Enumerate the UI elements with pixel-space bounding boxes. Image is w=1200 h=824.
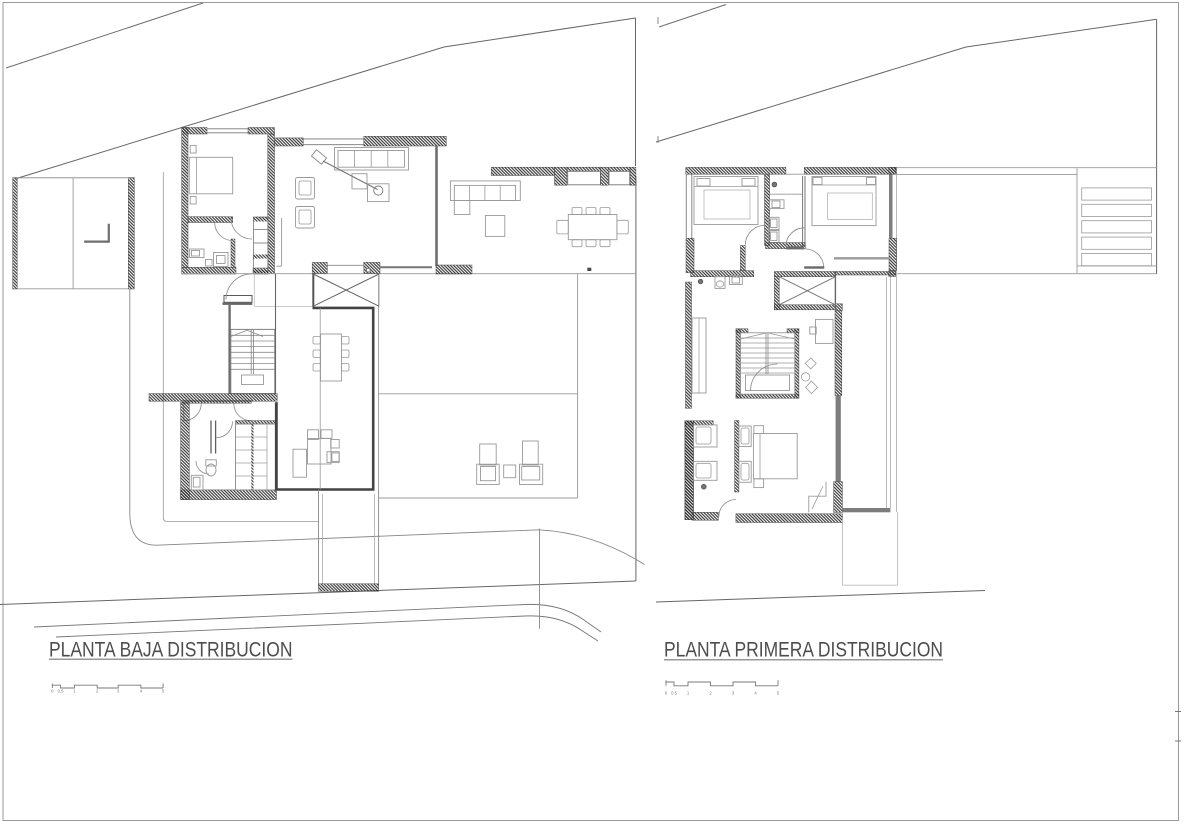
svg-text:0.5: 0.5	[671, 691, 677, 696]
svg-text:PLANTA PRIMERA DISTRIBUCION: PLANTA PRIMERA DISTRIBUCION	[664, 638, 943, 661]
svg-text:PLANTA BAJA DISTRIBUCION: PLANTA BAJA DISTRIBUCION	[49, 639, 293, 662]
svg-text:0.5: 0.5	[58, 688, 64, 693]
